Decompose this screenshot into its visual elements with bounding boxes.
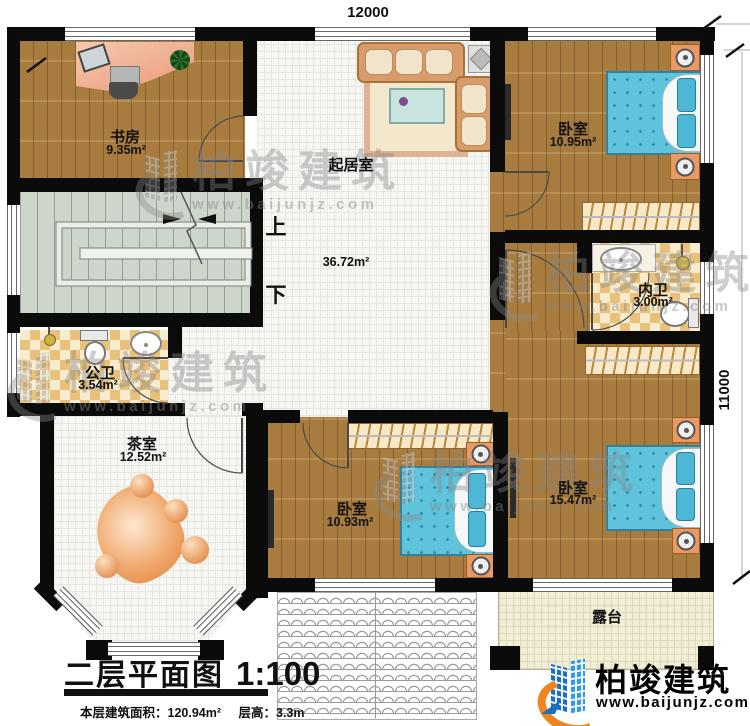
doors-group: [123, 116, 649, 473]
room-area-tea: 12.52m²: [120, 450, 167, 464]
floor-plan: 柏竣建筑 www.baijunjz.com 柏竣建筑 www.baijunjz.…: [0, 0, 750, 726]
plan-info: 本层建筑面积：120.94m² 层高：3.3m: [80, 702, 319, 721]
info-floor-area: 本层建筑面积：120.94m²: [80, 706, 221, 720]
stairs-down-label: 下: [266, 279, 287, 309]
stairs-up-label: 上: [266, 211, 287, 241]
room-area-living: 36.72m²: [323, 255, 370, 269]
room-area-bedroom1: 10.95m²: [550, 135, 597, 149]
title-underline: [64, 689, 268, 696]
room-label-living: 起居室: [328, 154, 373, 175]
title-block: 二层平面图 1:100: [64, 650, 320, 694]
brand-logo-icon: [543, 658, 591, 716]
stairs-group: [56, 192, 252, 286]
plan-scale: 1:100: [236, 655, 320, 693]
dimension-top: 12000: [338, 4, 398, 21]
plan-title: 二层平面图: [64, 650, 224, 694]
room-label-terrace: 露台: [592, 606, 622, 627]
brand-website: www.baijunjz.com: [596, 694, 749, 711]
room-area-bedroom2: 10.93m²: [327, 515, 374, 529]
room-area-inner-bath: 3.00m²: [633, 295, 673, 309]
dimension-right: 11000: [716, 360, 732, 420]
room-area-bedroom3: 15.47m²: [550, 493, 597, 507]
info-floor-height: 层高：3.3m: [239, 706, 305, 720]
room-area-study: 9.35m²: [106, 143, 146, 157]
room-area-public-bath: 3.54m²: [78, 378, 118, 392]
